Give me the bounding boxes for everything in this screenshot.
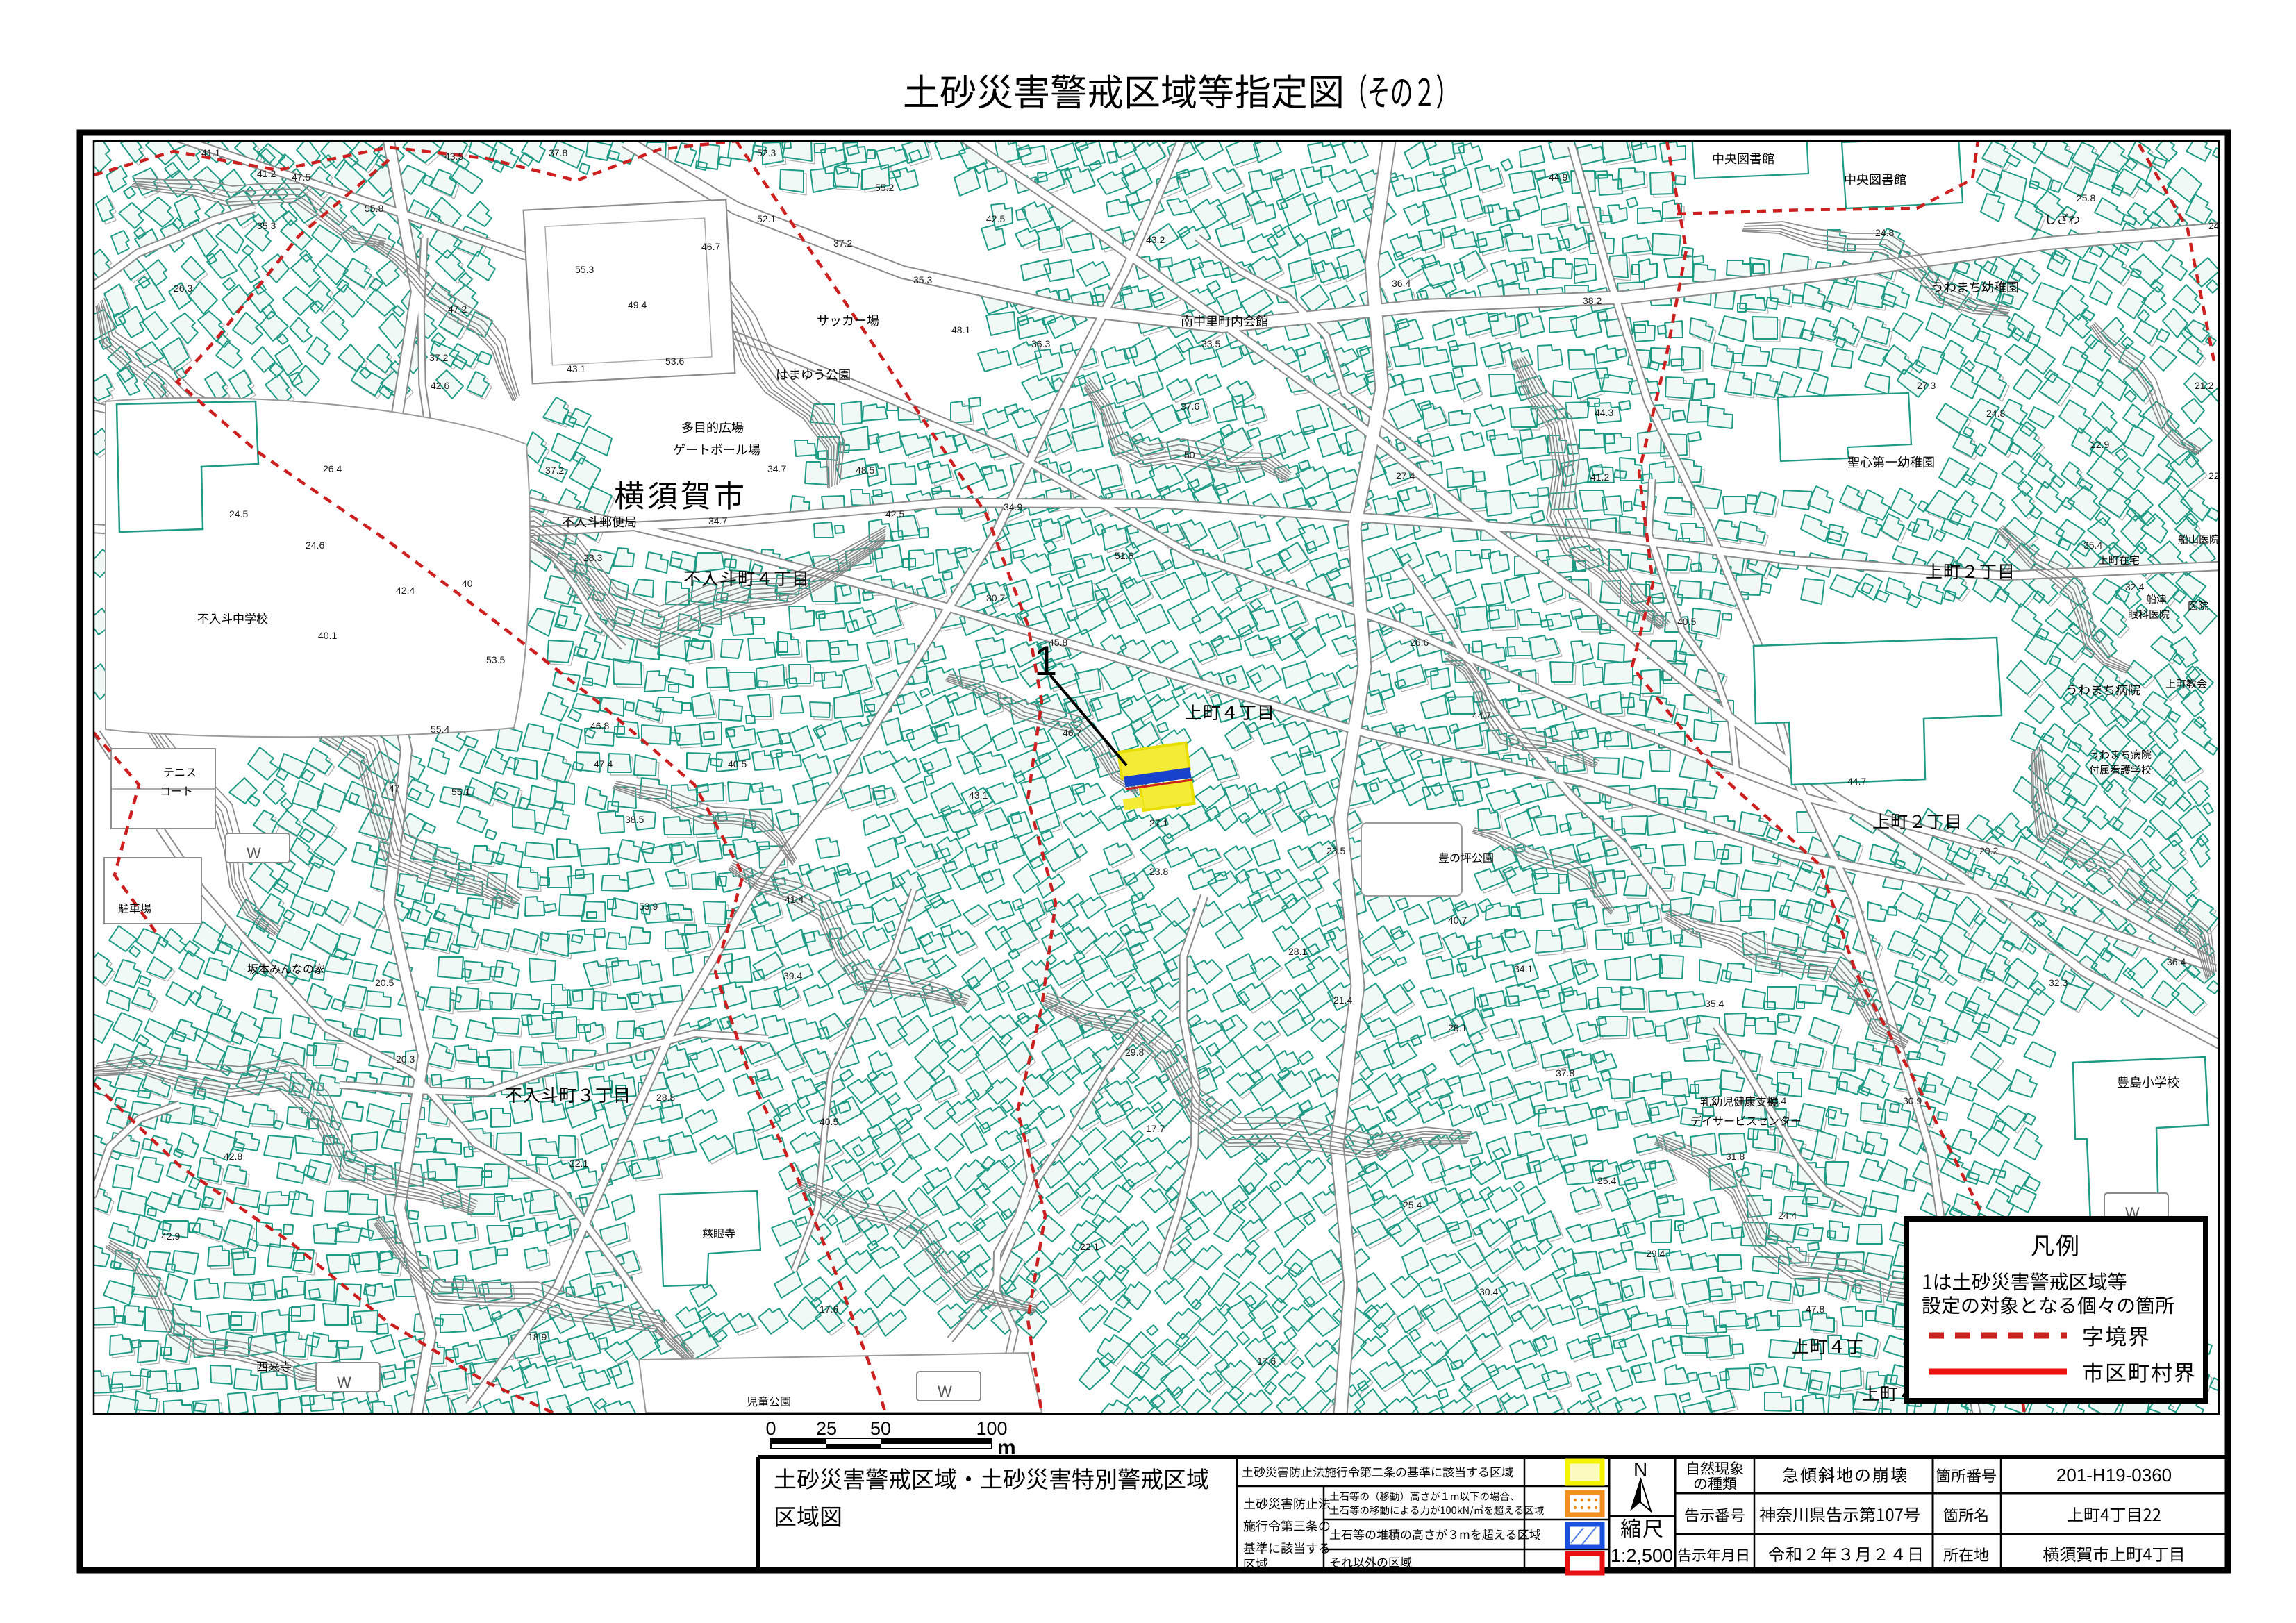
svg-text:37.2: 37.2 (545, 465, 564, 476)
svg-text:W: W (247, 844, 261, 862)
svg-text:47.5: 47.5 (292, 172, 310, 183)
svg-text:30.9: 30.9 (1903, 1095, 1922, 1106)
svg-text:55.2: 55.2 (875, 182, 894, 193)
svg-text:W: W (337, 1374, 351, 1391)
svg-text:32.4: 32.4 (2125, 581, 2144, 592)
svg-text:27.1: 27.1 (1149, 817, 1168, 829)
svg-text:42.5: 42.5 (885, 508, 904, 519)
svg-text:45.8: 45.8 (1049, 637, 1067, 648)
svg-text:21.4: 21.4 (1333, 994, 1352, 1006)
svg-text:17.7: 17.7 (1146, 1123, 1165, 1134)
svg-text:32.3: 32.3 (2049, 977, 2068, 988)
svg-text:36.4: 36.4 (1392, 278, 1411, 289)
svg-text:34.9: 34.9 (1004, 501, 1022, 513)
svg-text:30.4: 30.4 (1479, 1286, 1498, 1297)
svg-text:49.4: 49.4 (628, 299, 647, 310)
svg-text:53.9: 53.9 (639, 901, 658, 912)
svg-text:34.1: 34.1 (1514, 963, 1533, 974)
svg-text:43.4: 43.4 (1767, 1095, 1786, 1106)
svg-text:30.7: 30.7 (986, 592, 1005, 604)
svg-text:29.8: 29.8 (1125, 1047, 1144, 1058)
svg-text:22.1: 22.1 (569, 1158, 588, 1169)
svg-text:35.3: 35.3 (913, 274, 932, 285)
svg-text:38.5: 38.5 (625, 814, 644, 825)
svg-text:28.1: 28.1 (1448, 1022, 1467, 1033)
svg-text:27.4: 27.4 (1396, 470, 1415, 481)
svg-text:46.7: 46.7 (701, 241, 720, 252)
svg-text:51.6: 51.6 (1115, 550, 1133, 561)
svg-text:55.3: 55.3 (575, 264, 594, 275)
svg-text:26.3: 26.3 (174, 283, 192, 294)
svg-text:44.7: 44.7 (1847, 776, 1866, 787)
svg-text:26.6: 26.6 (1410, 637, 1429, 648)
svg-text:38.2: 38.2 (1583, 295, 1602, 306)
svg-text:37.8: 37.8 (1556, 1067, 1574, 1079)
svg-text:17.6: 17.6 (1257, 1356, 1276, 1367)
svg-text:24.8: 24.8 (1875, 227, 1894, 238)
svg-text:48.5: 48.5 (856, 465, 874, 476)
svg-text:46.8: 46.8 (590, 720, 609, 731)
svg-text:50: 50 (870, 1418, 891, 1439)
svg-text:24.6: 24.6 (306, 540, 324, 551)
svg-text:46.7: 46.7 (1063, 727, 1081, 738)
svg-text:39.4: 39.4 (783, 970, 802, 981)
svg-text:41.4: 41.4 (785, 894, 804, 905)
svg-text:31.8: 31.8 (1726, 1151, 1745, 1162)
svg-text:25: 25 (816, 1418, 837, 1439)
svg-text:37.2: 37.2 (429, 352, 448, 363)
svg-text:40: 40 (462, 578, 473, 589)
svg-text:40.5: 40.5 (820, 1116, 838, 1127)
svg-text:24.5: 24.5 (229, 508, 248, 519)
svg-text:33.5: 33.5 (1201, 338, 1220, 349)
svg-text:0: 0 (765, 1418, 776, 1439)
svg-text:18.9: 18.9 (528, 1331, 547, 1342)
svg-text:36.3: 36.3 (1031, 338, 1050, 349)
svg-text:43.2: 43.2 (1146, 234, 1165, 245)
svg-text:25.4: 25.4 (1403, 1199, 1422, 1210)
svg-text:35.3: 35.3 (257, 220, 276, 231)
svg-text:28.8: 28.8 (656, 1092, 675, 1103)
svg-text:43.1: 43.1 (969, 790, 988, 801)
svg-text:27.3: 27.3 (1917, 380, 1936, 391)
svg-text:23.8: 23.8 (1149, 866, 1168, 877)
svg-text:35.4: 35.4 (2083, 540, 2102, 551)
svg-text:42.9: 42.9 (161, 1231, 180, 1242)
svg-text:55.8: 55.8 (365, 203, 383, 214)
svg-text:N: N (1633, 1458, 1647, 1480)
svg-text:43.1: 43.1 (567, 363, 585, 374)
svg-text:22.9: 22.9 (2090, 439, 2109, 450)
svg-text:20.5: 20.5 (375, 977, 394, 988)
svg-text:55.1: 55.1 (451, 786, 470, 797)
svg-text:40.5: 40.5 (728, 758, 747, 769)
svg-text:48.1: 48.1 (951, 324, 970, 335)
svg-text:37.8: 37.8 (549, 147, 567, 158)
svg-text:22.1: 22.1 (1080, 1241, 1099, 1252)
svg-text:52.3: 52.3 (757, 147, 776, 158)
svg-text:52.1: 52.1 (757, 213, 776, 224)
svg-text:36.4: 36.4 (2167, 956, 2186, 967)
svg-text:44.9: 44.9 (1549, 172, 1567, 183)
svg-text:47.4: 47.4 (594, 758, 613, 769)
svg-text:44.7: 44.7 (1472, 710, 1491, 721)
svg-text:28.3: 28.3 (583, 552, 602, 563)
svg-text:55.4: 55.4 (431, 724, 449, 735)
svg-text:25.4: 25.4 (1597, 1175, 1616, 1186)
svg-text:21.2: 21.2 (2195, 380, 2213, 391)
svg-text:42.5: 42.5 (986, 213, 1005, 224)
svg-text:34.7: 34.7 (708, 515, 727, 526)
svg-text:42.6: 42.6 (431, 380, 449, 391)
svg-text:40.1: 40.1 (318, 630, 337, 641)
svg-text:29.4: 29.4 (1646, 1248, 1665, 1259)
svg-text:41.2: 41.2 (257, 168, 276, 179)
svg-text:37.2: 37.2 (833, 238, 852, 249)
svg-text:35.4: 35.4 (1705, 998, 1724, 1009)
svg-text:34.7: 34.7 (767, 463, 786, 474)
svg-text:201-H19-0360: 201-H19-0360 (2056, 1465, 2172, 1485)
svg-text:28.1: 28.1 (1288, 946, 1307, 957)
svg-text:25.8: 25.8 (2077, 192, 2095, 203)
svg-text:47: 47 (389, 783, 400, 794)
svg-text:24.8: 24.8 (1986, 408, 2005, 419)
svg-text:17.6: 17.6 (820, 1304, 838, 1315)
svg-text:26.4: 26.4 (323, 463, 342, 474)
svg-text:53.5: 53.5 (486, 654, 505, 665)
svg-text:43.5: 43.5 (444, 151, 463, 162)
svg-text:37.6: 37.6 (1181, 401, 1199, 412)
svg-text:20.3: 20.3 (396, 1054, 415, 1065)
svg-text:41.1: 41.1 (201, 147, 220, 158)
svg-text:23.5: 23.5 (1326, 845, 1345, 856)
svg-text:42.8: 42.8 (224, 1151, 242, 1162)
svg-text:24.4: 24.4 (1778, 1210, 1797, 1221)
svg-text:40.7: 40.7 (1448, 915, 1467, 926)
svg-text:44.3: 44.3 (1595, 407, 1613, 418)
svg-text:42.4: 42.4 (396, 585, 415, 596)
svg-text:47.8: 47.8 (1806, 1304, 1824, 1315)
svg-text:W: W (938, 1383, 952, 1400)
svg-text:41.2: 41.2 (1590, 472, 1609, 483)
svg-text:1:2,500: 1:2,500 (1611, 1545, 1673, 1566)
svg-text:53.6: 53.6 (665, 356, 684, 367)
svg-text:47.2: 47.2 (448, 303, 467, 315)
svg-text:20.2: 20.2 (1979, 845, 1998, 856)
svg-text:40.5: 40.5 (1677, 616, 1696, 627)
svg-text:50: 50 (1184, 449, 1195, 460)
